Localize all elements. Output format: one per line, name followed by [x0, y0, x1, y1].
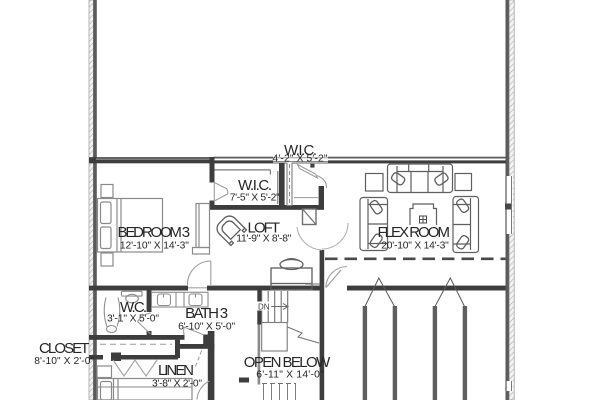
svg-text:BATH 3: BATH 3 [185, 305, 228, 322]
svg-text:8'-10" X 2'-0": 8'-10" X 2'-0" [34, 356, 94, 367]
svg-text:12'-10" X 14'-3": 12'-10" X 14'-3" [120, 240, 189, 251]
svg-text:LINEN: LINEN [158, 362, 194, 379]
svg-text:DN: DN [258, 303, 270, 312]
svg-text:FLEX ROOM: FLEX ROOM [377, 224, 450, 241]
svg-text:3'-1" X 5'-0": 3'-1" X 5'-0" [107, 314, 159, 325]
svg-text:4'-2" X 5'-2": 4'-2" X 5'-2" [273, 153, 328, 164]
svg-text:7'-5" X 5'-2": 7'-5" X 5'-2" [230, 193, 280, 204]
svg-text:11'-9" X 8'-8": 11'-9" X 8'-8" [236, 233, 291, 244]
svg-text:6'-10" X 5'-0": 6'-10" X 5'-0" [178, 322, 235, 333]
svg-text:6'-11" X 14'-0": 6'-11" X 14'-0" [256, 370, 324, 381]
svg-text:W.I.C.: W.I.C. [238, 177, 272, 194]
svg-text:BEDROOM 3: BEDROOM 3 [118, 224, 191, 241]
svg-text:20'-10" X 14'-3": 20'-10" X 14'-3" [381, 241, 449, 252]
svg-text:OPEN BELOW: OPEN BELOW [244, 354, 331, 371]
svg-text:CLOSET: CLOSET [39, 340, 90, 357]
svg-text:3'-8" X 2'-0": 3'-8" X 2'-0" [152, 379, 202, 390]
